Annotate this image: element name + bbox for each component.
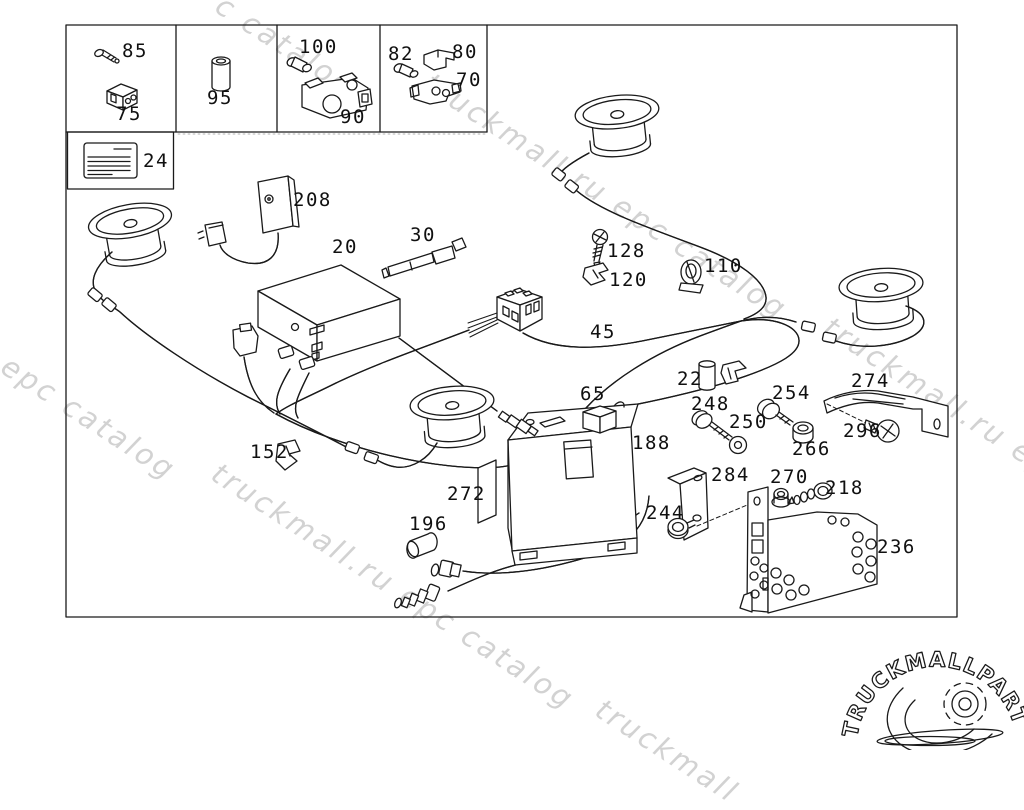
part-120-clip	[583, 263, 608, 285]
speaker-rear-top	[574, 91, 664, 160]
part-218-bolt	[788, 483, 832, 505]
gear-icon	[944, 683, 986, 725]
part-82-bulb	[393, 62, 419, 78]
part-70-lamp-housing	[410, 80, 461, 104]
part-110-clip	[679, 260, 703, 293]
part-90-switch-unit	[302, 73, 372, 118]
diagram-canvas: CODE	[0, 0, 1024, 750]
speaker-front-mid	[409, 383, 498, 451]
part-80-bracket	[424, 50, 454, 70]
part-85-screw	[94, 48, 119, 63]
part-152-clip	[276, 440, 300, 470]
part-250-washer	[730, 437, 747, 454]
part-236-mount-bracket	[740, 487, 877, 613]
amp-cable-plugs	[393, 560, 461, 609]
svg-text:TRUCKMALLPARTS: TRUCKMALLPARTS	[0, 0, 1024, 739]
part-100-bulb	[286, 56, 313, 73]
part-22-angle-plug	[721, 361, 746, 384]
part-208-antenna-module	[198, 176, 299, 264]
speaker-rear-right	[838, 266, 926, 333]
part-75-connector	[107, 84, 137, 110]
harness-connector-block	[497, 288, 542, 331]
radio-head-unit	[258, 265, 400, 361]
part-196-cap	[405, 533, 437, 558]
part-270-nut	[772, 489, 790, 508]
part-272-panel	[478, 460, 496, 523]
inline-connectors	[87, 167, 836, 464]
part-22-spacer	[699, 361, 715, 390]
part-266-nut	[793, 422, 813, 443]
part-296-screw	[864, 420, 899, 442]
truckmall-logo: TRUCKMALLPARTS	[0, 0, 1024, 750]
logo-text-gray: TRUCKMALL	[838, 648, 982, 739]
parts-catalog-page: { "diagram": { "description": "car audio…	[0, 0, 1024, 750]
part-254-bolt	[755, 396, 793, 425]
part-248-bolt	[689, 408, 732, 440]
part-30-support-rod	[382, 238, 466, 278]
speaker-front-left	[86, 197, 179, 272]
part-95-fuse	[212, 57, 230, 91]
logo-text-pink: PARTS	[0, 0, 1024, 728]
part-24-code-card: CODE	[84, 143, 137, 178]
